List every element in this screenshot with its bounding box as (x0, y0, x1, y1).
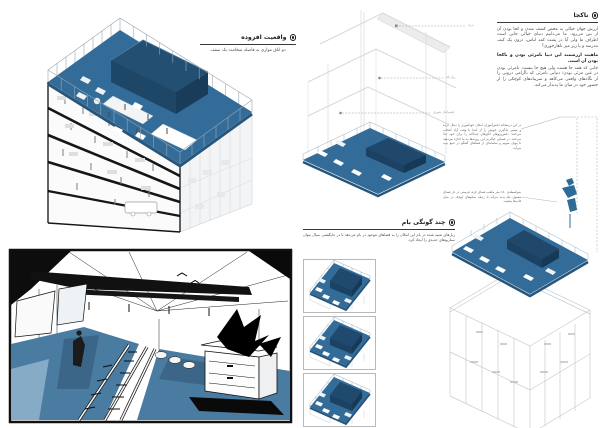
nakoja-paragraph-1: ارزش جهان خیالی به محض کشف شدن و کجا بود… (497, 27, 598, 50)
roofgrid-heading: چند گونگی بام (402, 219, 446, 226)
augmented-heading-row: واقعیت افزوده (200, 34, 296, 45)
section-roof-variations: چند گونگی بام ریل‌های تعبیه شده در بام ا… (303, 219, 455, 243)
roof-variation-grid (303, 259, 451, 428)
bullseye-icon (449, 219, 456, 226)
bullseye-icon (290, 34, 297, 41)
explode-label-view: چشم‌انداز شهری (433, 110, 455, 114)
roof-variation-thumbnail (303, 373, 376, 427)
roof-variation-thumbnail (303, 259, 376, 313)
roofgrid-heading-row: چند گونگی بام (303, 219, 455, 230)
nakoja-heading-row: ناکجا (497, 12, 598, 23)
blue-totem-mark (562, 178, 577, 228)
nakoja-paragraph-2: جایی که همه جا هست ولی هیچ جا نیست. نامر… (497, 66, 598, 89)
explode-label-rail: ریل بام (446, 75, 455, 79)
roofgrid-caption: ریل‌های تعبیه شده در بام این امکان را به… (303, 233, 455, 243)
section-augmented-reality: واقعیت افزوده دو اتاق موازی به فاصله ضخا… (200, 34, 296, 53)
exploded-axonometric-diagram (303, 10, 456, 196)
roof-axonometric-drawing (450, 212, 590, 428)
explode-label-railing: نرده (468, 23, 474, 27)
augmented-heading: واقعیت افزوده (241, 34, 286, 41)
nakoja-heading: ناکجا (573, 12, 588, 19)
augmented-body: دو اتاق موازی به فاصله ضخامت یک سقف (200, 48, 296, 54)
callout-box-2: به‌واسطه‌ی ۱۸۰ متر مکعب فضای تازه، فرصتی… (443, 190, 521, 204)
bullseye-icon (592, 12, 599, 19)
roof-variation-thumbnail (303, 316, 376, 370)
callout-box-1: در این درسخانه دانش‌آموزان امکان خودآموز… (443, 123, 521, 150)
section-nakoja: ناکجا ارزش جهان خیالی به محض کشف شدن و ک… (497, 12, 598, 89)
nakoja-lead: ماهیت ارزشمند این دنیا نامرئی بودن و ناک… (497, 53, 598, 64)
comic-interior-illustration (10, 250, 291, 422)
architecture-presentation-board: واقعیت افزوده دو اتاق موازی به فاصله ضخا… (0, 0, 600, 428)
